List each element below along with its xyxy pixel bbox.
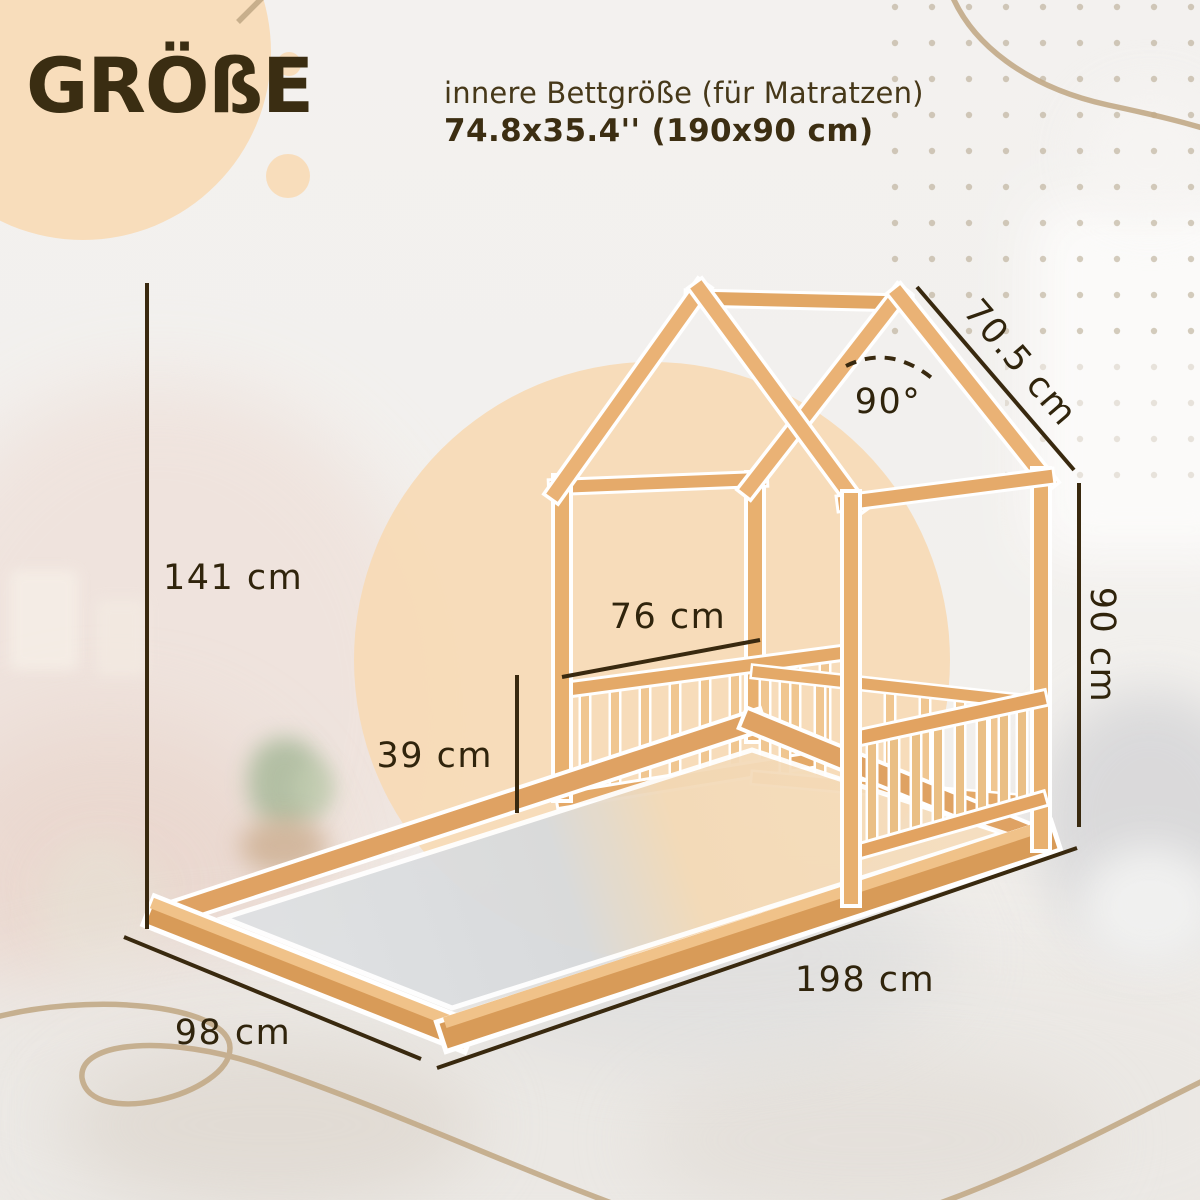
dim-label-inner-top-width: 76 cm [610, 597, 727, 637]
dim-label-total-height: 141 cm [163, 558, 303, 598]
dim-label-outer-length: 198 cm [795, 960, 935, 1000]
dim-label-roof-angle: 90° [855, 382, 922, 422]
polka-dot-pattern [868, 0, 1200, 335]
subtitle-inner-size-label: innere Bettgröße (für Matratzen) [444, 76, 924, 110]
dim-label-outer-width: 98 cm [175, 1013, 292, 1053]
subtitle-block: innere Bettgröße (für Matratzen) 74.8x35… [444, 76, 924, 149]
subtitle-inner-size-value: 74.8x35.4'' (190x90 cm) [444, 113, 924, 149]
bed-size-diagram: 141 cm 76 cm 39 cm 90° 70.5 cm 90 cm 198… [0, 0, 1200, 1200]
accent-dot-large [266, 154, 310, 198]
page-title: GRÖßE [26, 48, 313, 124]
infographic-canvas: 141 cm 76 cm 39 cm 90° 70.5 cm 90 cm 198… [0, 0, 1200, 1200]
dim-label-wall-height: 90 cm [1082, 587, 1122, 704]
dim-label-rail-height: 39 cm [377, 736, 494, 776]
